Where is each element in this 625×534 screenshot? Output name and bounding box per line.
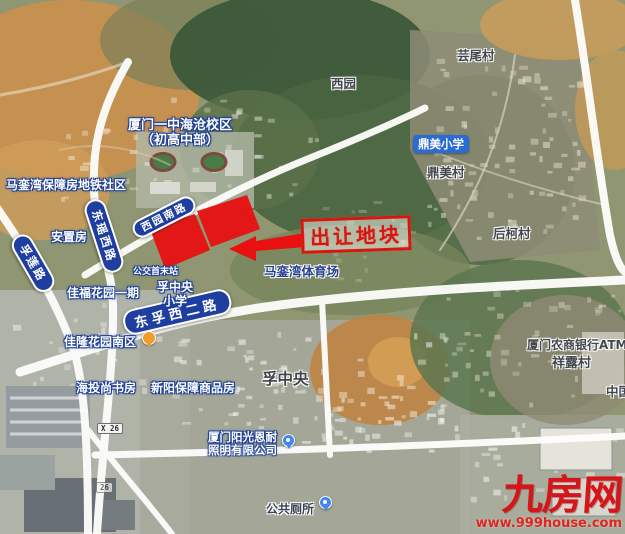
land-plot-callout-box: 出让地块: [300, 215, 411, 254]
county-road-x26-badge: X 26: [97, 423, 123, 434]
watermark: 九房网 www.999house.com: [476, 475, 622, 530]
watermark-logo: 九房网: [474, 475, 623, 516]
satellite-basemap: [0, 0, 625, 534]
satellite-land-plot-map: 孚莲路 东瑶西路 西园南路 东孚西二路 X 26 26 厦门一中海沧校区 （初高…: [0, 0, 625, 534]
label-dingmei-primary: 鼎美小学: [413, 135, 469, 153]
county-road-x26-badge-faded: 26: [96, 482, 113, 493]
